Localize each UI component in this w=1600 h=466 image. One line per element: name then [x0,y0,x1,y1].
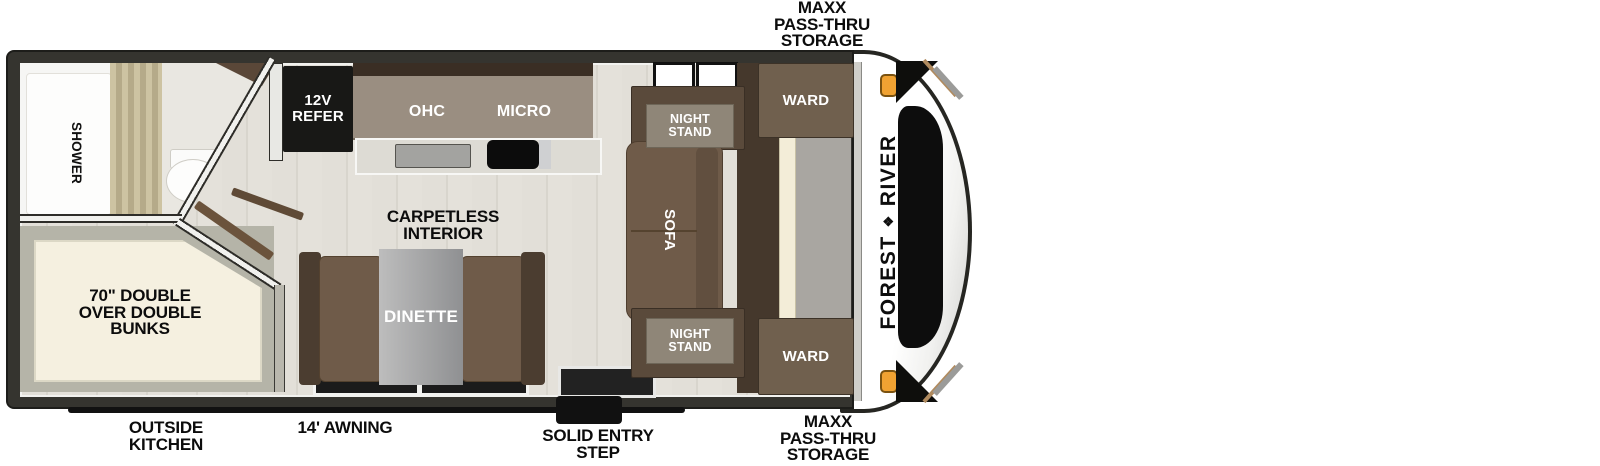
sofa-label-text: SOFA [662,209,676,251]
wardrobe-bottom: WARD [758,318,854,395]
ohc-label-text: OHC [409,105,445,119]
dinette-label: DINETTE [384,310,458,324]
brand-word-river: RIVER [877,135,901,207]
wardrobe-top-text: WARD [783,94,830,108]
refer-label-line1: 12V [304,93,331,109]
bed-edge-strip [779,130,796,334]
sofa-label: SOFA [661,200,677,260]
front-graphic-gray-top [932,66,963,100]
dinette-table: DINETTE [379,249,463,385]
wardrobe-bottom-label: WARD [783,350,830,364]
ohc-label: OHC [397,103,457,121]
awning-label: 14' AWNING [298,420,393,437]
cooktop [487,140,539,169]
bunk-label-line3: BUNKS [110,321,169,338]
night-stand-bottom-line2: STAND [668,341,711,354]
awning-label-text: 14' AWNING [298,420,393,437]
front-cap: FOREST ❖ RIVER [840,50,972,413]
dinette-bench-back-right [521,252,545,385]
bunk-right-wall [274,285,285,392]
night-stand-top-line2: STAND [668,126,711,139]
micro-label-text: MICRO [497,105,551,119]
bath-kitchen-wall [269,63,283,161]
front-storage-bottom-line3: STORAGE [787,447,869,464]
night-stand-top-panel: NIGHT STAND [646,104,734,148]
wardrobe-bottom-text: WARD [783,350,830,364]
night-stand-bottom-panel: NIGHT STAND [646,318,734,364]
shower-label-text: SHOWER [69,122,83,184]
sink [395,144,471,168]
sofa-backrest [696,146,718,316]
shower-curtain [110,63,162,223]
dinette-bench-left [319,256,383,382]
micro-label: MICRO [489,103,559,121]
front-window [898,106,943,348]
bath-bunk-wall [20,214,182,223]
refrigerator: 12V REFER [283,66,353,152]
entry-step-line2: STEP [576,445,620,462]
front-storage-top-line3: STORAGE [781,33,863,50]
dinette-label-text: DINETTE [384,310,458,324]
wardrobe-top-label: WARD [783,94,830,108]
carpetless-note: CARPETLESS INTERIOR [387,209,499,242]
entry-step-label: SOLID ENTRY STEP [542,428,653,461]
carpetless-line2: INTERIOR [403,226,483,243]
outside-kitchen-label: OUTSIDE KITCHEN [129,420,203,453]
rv-floorplan: FOREST ❖ RIVER SHOWER 70" DOUBLE OVER DO… [0,0,1600,466]
overhead-cabinet [353,63,593,140]
front-graphic-gray-bottom [932,362,963,396]
front-storage-label-bottom: MAXX PASS-THRU STORAGE [780,414,876,464]
wardrobe-top: WARD [758,63,854,138]
kitchen-counter [355,138,602,175]
dinette-bench-right [461,256,525,382]
cooktop-edge [539,140,551,169]
dinette-bench-back-left [299,252,321,385]
shower-label: SHOWER [69,125,83,181]
sofa: SOFA [626,141,723,321]
front-storage-label-top: MAXX PASS-THRU STORAGE [774,0,870,50]
forest-river-logo-icon: ❖ [881,214,897,227]
brand-forest-river: FOREST ❖ RIVER [877,71,901,393]
brand-word-forest: FOREST [877,235,901,329]
outside-kitchen-line2: KITCHEN [129,437,203,454]
refer-label-line2: REFER [292,109,344,125]
awning-bar [68,407,685,413]
bunk-label: 70" DOUBLE OVER DOUBLE BUNKS [79,288,201,338]
